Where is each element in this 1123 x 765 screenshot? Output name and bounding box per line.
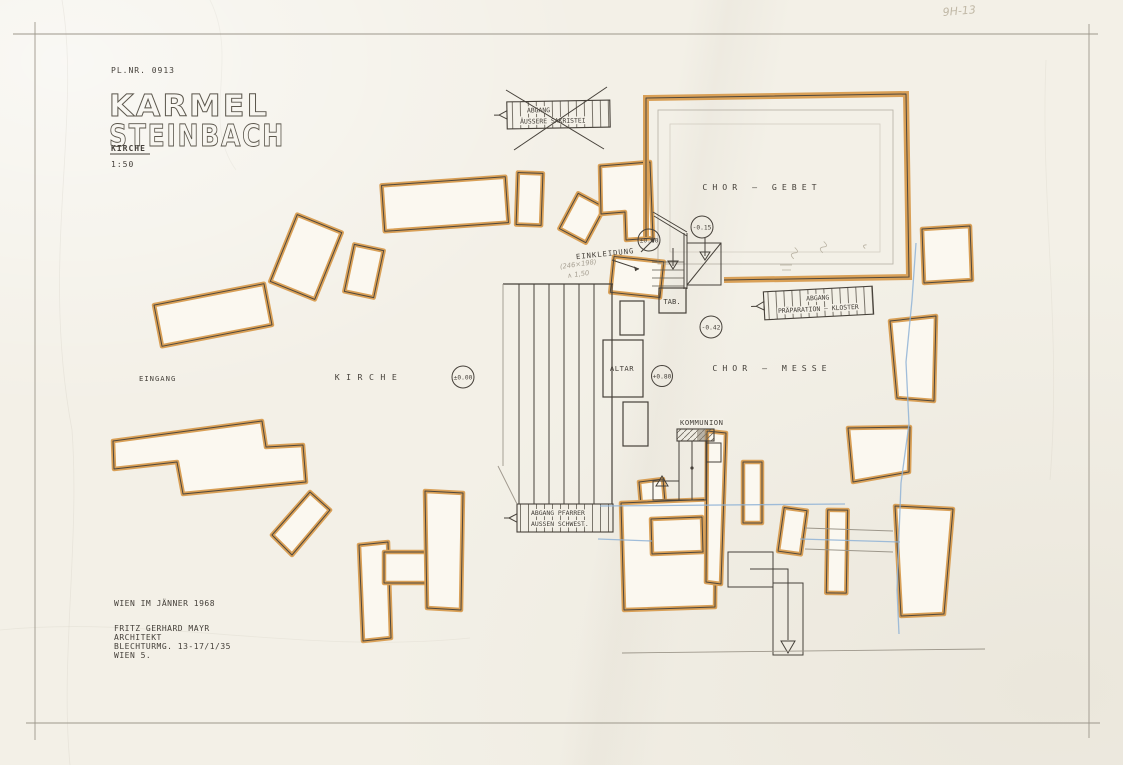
wall-fragment	[890, 316, 936, 401]
architect-address: BLECHTURMG. 13-17/1/35	[114, 642, 231, 651]
wall-z-polygon	[113, 421, 306, 494]
stair-pfarrer-label1: ABGANG PFARRER	[531, 509, 585, 517]
sheet-subtitle: KIRCHE	[111, 144, 146, 153]
architect-name: FRITZ GERHARD MAYR	[114, 624, 210, 633]
wall-fragment	[895, 506, 953, 616]
room-eingang: EINGANG	[139, 374, 176, 383]
level-marker-icon	[668, 248, 678, 269]
wall-fragment	[743, 462, 762, 523]
level-altar: +0.80	[652, 366, 673, 387]
stair-praeparation-label1: ABGANG	[806, 293, 830, 302]
stair-arrow-icon	[504, 514, 517, 522]
signature-block: WIEN IM JÄNNER 1968 FRITZ GERHARD MAYR A…	[114, 598, 231, 660]
level-nave: ±0.00	[452, 366, 474, 388]
wall-fragment	[922, 226, 972, 283]
wall-fragment	[154, 284, 272, 347]
stair-pfarrer-label2: AUSSEN SCHWEST.	[531, 520, 589, 528]
level-chor-gebet-value: -0.15	[693, 225, 712, 232]
level-chor-messe-value: -0.42	[702, 325, 721, 332]
level-chor-messe: -0.42	[700, 316, 722, 338]
level-nave-value: ±0.00	[454, 375, 473, 382]
level-marker-icon	[700, 238, 710, 260]
stair-pfarrer: ABGANG PFARRER AUSSEN SCHWEST.	[504, 504, 613, 532]
room-chor-gebet: CHOR — GEBET	[702, 182, 821, 192]
plan-sheet: PL.NR. 0913 KARMEL STEINBACH KIRCHE 1:50…	[0, 0, 1123, 765]
wall-fragment	[826, 510, 847, 593]
altar-group: TAB. ALTAR	[603, 288, 686, 446]
wall-h-right	[425, 491, 463, 610]
architect-city: WIEN 5.	[114, 651, 151, 660]
stair-sakristei-label1: ABGANG	[527, 106, 550, 114]
room-chor-messe: CHOR — MESSE	[712, 363, 831, 373]
title-block: PL.NR. 0913 KARMEL STEINBACH KIRCHE 1:50	[109, 66, 285, 169]
architect-title: ARCHITEKT	[114, 633, 162, 642]
sheet-scale: 1:50	[111, 160, 134, 169]
wall-tall-center	[706, 431, 726, 584]
plan-number: PL.NR. 0913	[111, 66, 175, 75]
wall-fragment	[610, 256, 663, 297]
wall-building-inner	[651, 517, 703, 554]
altar-label: ALTAR	[610, 364, 634, 373]
wall-fragment	[270, 215, 341, 300]
level-chor-gebet: -0.15	[691, 216, 713, 238]
wall-fragment	[344, 244, 383, 297]
nave-steps	[498, 284, 613, 504]
einkleidung-pencil-note: (246×198) ∧ 1,50	[559, 258, 598, 281]
wall-fragment	[382, 177, 509, 232]
wall-fragment	[559, 193, 604, 242]
wall-fragment	[516, 173, 543, 226]
corner-pencil-note: 9H-13	[942, 3, 976, 19]
kommunion-label: KOMMUNION	[680, 418, 723, 427]
tabernacle-label: TAB.	[663, 297, 680, 306]
stair-arrow-icon	[494, 111, 507, 120]
stair-arrow-icon	[751, 302, 764, 311]
wall-pieces	[113, 94, 972, 641]
date-note: WIEN IM JÄNNER 1968	[114, 598, 215, 608]
level-altar-value: +0.80	[653, 374, 672, 381]
stair-praeparation: ABGANG PRÄPARATION — KLOSTER	[750, 286, 873, 320]
pencil-note-line1: (246×198)	[559, 258, 597, 271]
wall-fragment	[778, 508, 807, 555]
pencil-note-line2: ∧ 1,50	[567, 269, 590, 280]
room-kirche: KIRCHE	[335, 372, 404, 382]
